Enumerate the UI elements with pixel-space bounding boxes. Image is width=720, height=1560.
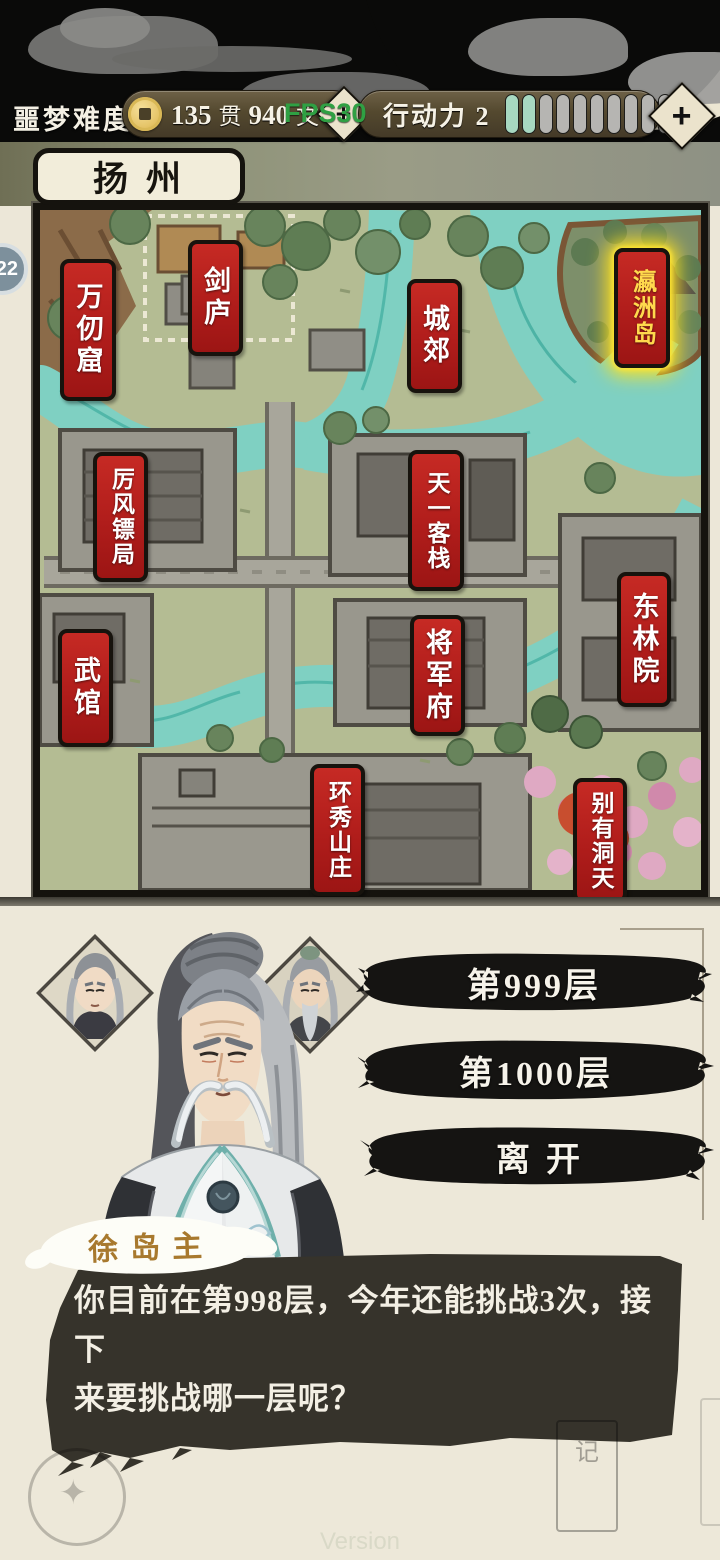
option-floor-1000-button[interactable]: 第1000层 [358, 1038, 714, 1102]
option-label: 第1000层 [358, 1038, 714, 1102]
banner-layer: 万仞窟 剑庐 城郊 瀛洲岛 厉风镖局 天一客栈 东林院 武馆 将军府 环秀山庄 … [7, 7, 720, 907]
frame-corner-line [620, 928, 704, 930]
status-bar: 噩梦难度 135 贯 940 文 + FPS30 行动力 2 [0, 88, 720, 142]
location-banner-bieyoudongtian[interactable]: 别有洞天 [573, 778, 627, 903]
tablet-decoration: 记 [556, 1420, 618, 1532]
location-label: 万仞窟 [69, 282, 108, 378]
location-banner-jiangjunfu[interactable]: 将军府 [410, 615, 465, 736]
location-banner-lifengbiaoju[interactable]: 厉风镖局 [93, 452, 148, 582]
location-banner-huanxiushanzhuang[interactable]: 环秀山庄 [310, 764, 365, 896]
segment-active [505, 94, 519, 134]
segment-empty [573, 94, 587, 134]
dialog-panel: 第999层 第1000层 离开 徐岛主 你目前在第998层，今年还能挑战3次，接… [0, 906, 720, 1560]
plus-icon: + [672, 96, 692, 135]
location-label: 将军府 [418, 628, 457, 724]
segment-empty [539, 94, 553, 134]
action-points-segments [505, 94, 672, 134]
guan-unit: 贯 [219, 97, 242, 131]
location-label: 瀛洲岛 [625, 269, 660, 347]
option-leave-button[interactable]: 离开 [360, 1124, 716, 1188]
add-action-button[interactable]: + [648, 82, 716, 150]
difficulty-label: 噩梦难度 [13, 98, 133, 137]
location-label: 东林院 [625, 592, 664, 688]
location-banner-donglinyuan[interactable]: 东林院 [617, 572, 671, 707]
location-label: 城郊 [415, 304, 454, 368]
location-label: 别有洞天 [583, 791, 617, 891]
location-label: 天一客栈 [419, 471, 453, 571]
tablet-decoration [700, 1398, 720, 1526]
location-banner-wuguan[interactable]: 武馆 [58, 629, 113, 747]
fps-overlay: FPS30 [284, 98, 367, 129]
segment-empty [624, 94, 638, 134]
segment-empty [590, 94, 604, 134]
coin-icon [128, 97, 162, 131]
option-label: 第999层 [356, 950, 712, 1014]
segment-empty [607, 94, 621, 134]
coin-decoration [28, 1448, 126, 1546]
region-title-tab: 扬州 [33, 148, 245, 205]
location-banner-yingzhoudao[interactable]: 瀛洲岛 [614, 248, 670, 368]
option-label: 离开 [360, 1124, 716, 1188]
dialog-text: 你目前在第998层，今年还能挑战3次，接下 来要挑战哪一层呢？ [74, 1276, 664, 1423]
game-screen: 噩梦难度 135 贯 940 文 + FPS30 行动力 2 [0, 0, 720, 1560]
location-banner-wanrenku[interactable]: 万仞窟 [60, 259, 116, 401]
location-banner-tianyikezhan[interactable]: 天一客栈 [408, 450, 464, 591]
segment-active [522, 94, 536, 134]
location-label: 剑庐 [196, 266, 235, 330]
town-map: 万仞窟 剑庐 城郊 瀛洲岛 厉风镖局 天一客栈 东林院 武馆 将军府 环秀山庄 … [33, 203, 708, 897]
dialog-line: 来要挑战哪一层呢？ [74, 1374, 664, 1423]
location-banner-jianlu[interactable]: 剑庐 [188, 240, 243, 356]
location-label: 环秀山庄 [321, 780, 355, 880]
speaker-name: 徐岛主 [77, 1221, 214, 1270]
location-banner-chengjiao[interactable]: 城郊 [407, 279, 462, 393]
wen-value: 940 [249, 100, 290, 131]
location-label: 武馆 [66, 656, 105, 720]
segment-empty [556, 94, 570, 134]
tablet-char: 记 [575, 1432, 599, 1530]
guan-value: 135 [171, 100, 212, 131]
action-points-bar: 行动力 2 [358, 90, 660, 138]
location-label: 厉风镖局 [104, 467, 138, 567]
panel-divider [0, 897, 720, 906]
action-points-label: 行动力 2 [383, 96, 491, 133]
region-title: 扬州 [79, 151, 199, 202]
dialog-line: 你目前在第998层，今年还能挑战3次，接下 [74, 1276, 664, 1374]
option-floor-999-button[interactable]: 第999层 [356, 950, 712, 1014]
